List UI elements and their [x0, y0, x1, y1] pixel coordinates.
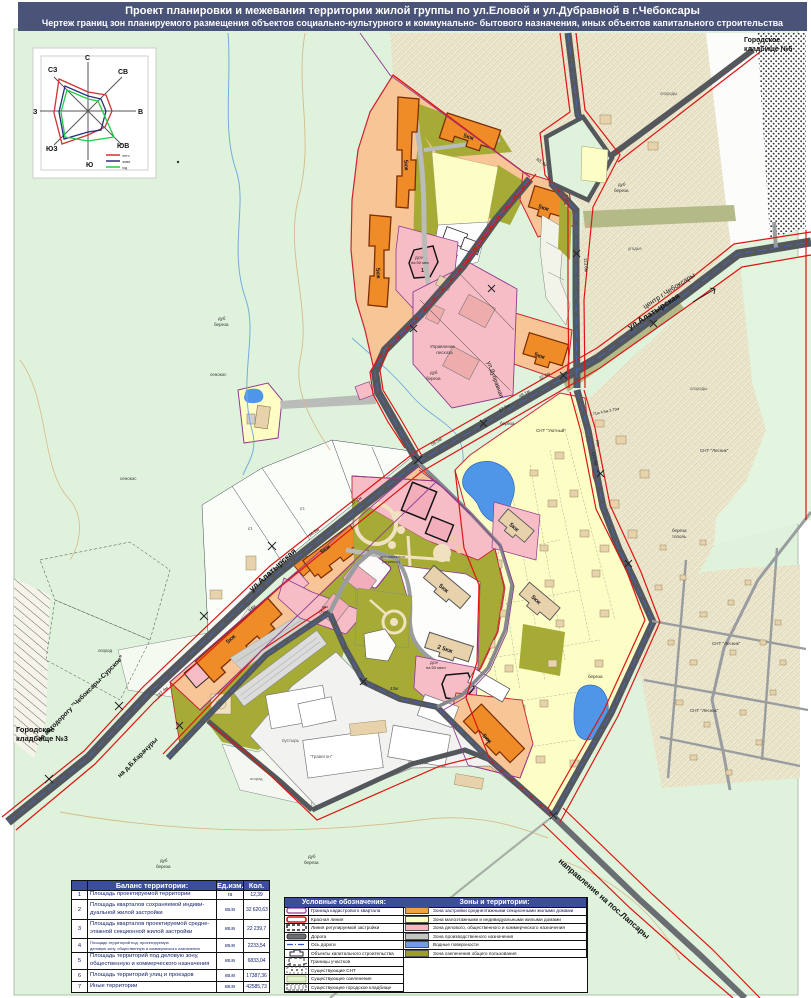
svg-text:дуб: дуб	[430, 370, 438, 375]
svg-text:дуб: дуб	[618, 182, 626, 187]
svg-text:лето: лето	[122, 154, 130, 158]
svg-text:береза: береза	[214, 322, 229, 327]
svg-text:на 50 мес: на 50 мес	[411, 260, 429, 265]
svg-text:пустырь: пустырь	[282, 738, 300, 743]
svg-text:СЗ: СЗ	[48, 67, 58, 74]
svg-text:береза: береза	[588, 674, 603, 679]
svg-text:"Тул.: "Тул.	[319, 610, 328, 614]
svg-text:береза: береза	[304, 860, 319, 865]
svg-text:ЮВ: ЮВ	[117, 143, 129, 150]
svg-text:СВ: СВ	[118, 69, 128, 76]
svg-text:огороды: огороды	[660, 91, 677, 96]
svg-text:Ю: Ю	[86, 162, 93, 169]
svg-text:огород: огород	[250, 776, 263, 781]
svg-text:береза: береза	[614, 188, 629, 193]
svg-text:(перенос): (перенос)	[382, 559, 401, 564]
svg-text:береза: береза	[672, 528, 687, 533]
svg-text:СНТ "Лесник": СНТ "Лесник"	[712, 641, 741, 646]
svg-text:СНТ "Лесник": СНТ "Лесник"	[700, 448, 729, 453]
svg-text:СНТ "Лесник": СНТ "Лесник"	[690, 708, 719, 713]
svg-text:В: В	[138, 109, 143, 116]
svg-text:тополь: тополь	[672, 534, 687, 539]
svg-text:сенокос: сенокос	[210, 372, 227, 377]
svg-text:огород: огород	[98, 648, 112, 653]
svg-text:З: З	[33, 109, 38, 116]
svg-text:береза: береза	[500, 421, 515, 426]
svg-text:С: С	[85, 55, 90, 62]
svg-text:ООО"Дъя": ООО"Дъя"	[408, 760, 430, 765]
svg-text:береза: береза	[156, 864, 171, 869]
svg-text:1: 1	[421, 268, 424, 274]
svg-text:5кж: 5кж	[374, 268, 381, 280]
svg-text:дуб: дуб	[308, 854, 316, 859]
svg-text:огороды: огороды	[690, 386, 707, 391]
svg-text:5кж: 5кж	[402, 160, 409, 172]
svg-text:Управление: Управление	[430, 344, 456, 349]
svg-text:ЮЗ: ЮЗ	[46, 146, 58, 153]
svg-text:дуб: дуб	[160, 858, 168, 863]
svg-text:113.6м: 113.6м	[583, 258, 589, 272]
svg-text:43м: 43м	[390, 686, 398, 691]
svg-text:береза: береза	[426, 376, 441, 381]
svg-text:ст.: ст.	[300, 506, 305, 511]
svg-text:кладбище №5: кладбище №5	[744, 45, 793, 53]
svg-text:ст.: ст.	[248, 526, 253, 531]
svg-text:СНТ "Уютный": СНТ "Уютный"	[536, 427, 566, 433]
svg-text:лесхоза: лесхоза	[436, 350, 453, 355]
svg-text:"Гравитон": "Гравитон"	[310, 754, 333, 759]
svg-text:маг: маг	[322, 605, 329, 609]
svg-text:Городское: Городское	[744, 37, 780, 44]
svg-text:дуб: дуб	[218, 316, 226, 321]
svg-text:сенокос: сенокос	[120, 476, 137, 481]
svg-text:год: год	[122, 166, 128, 170]
svg-text:зима: зима	[122, 160, 130, 164]
svg-text:на 50 мест: на 50 мест	[426, 665, 446, 670]
svg-text:угодья: угодья	[628, 246, 642, 251]
